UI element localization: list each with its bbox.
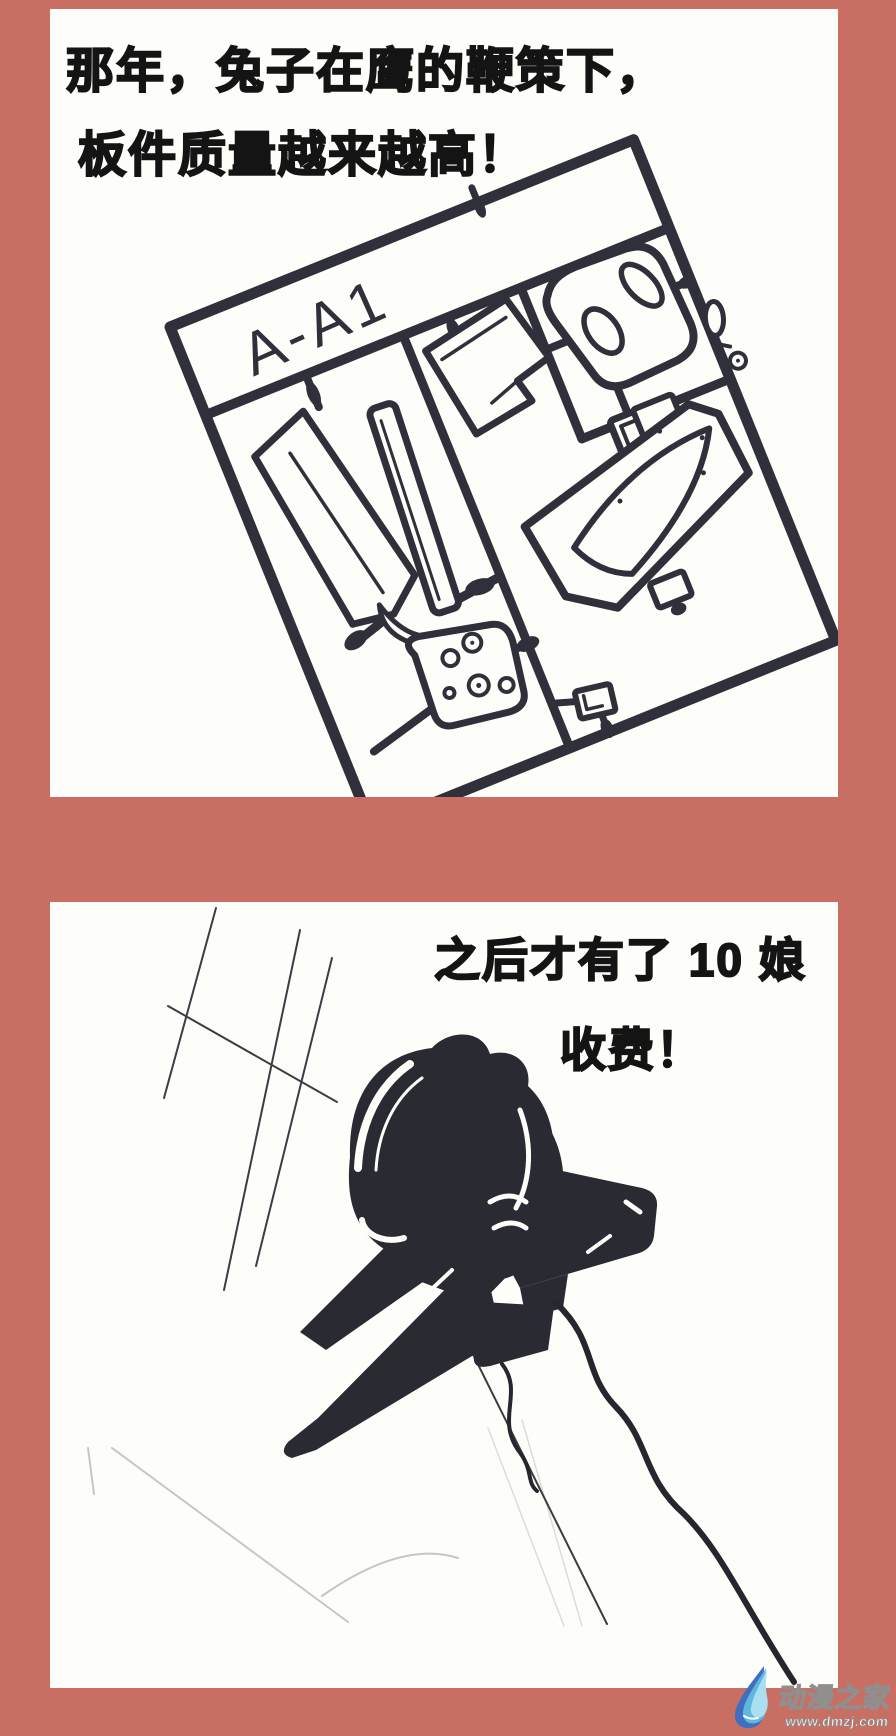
dmzj-watermark: 动漫之家 www.dmzj.com [730, 1664, 890, 1728]
comic-panel-bottom: 之后才有了 10 娘 收费！ [50, 902, 838, 1688]
sprue-part-small-block [574, 684, 615, 719]
comic-page: { "theme": { "background_color": "#c96e6… [0, 0, 896, 1736]
watermark-site-name: 动漫之家 [777, 1685, 892, 1712]
panel1-caption-line1: 那年，兔子在鹰的鞭策下， [66, 31, 666, 101]
watermark-site-url: www.dmzj.com [776, 1715, 889, 1729]
panel2-caption-line2: 收费！ [434, 1014, 830, 1080]
chibi-jet-silhouette [284, 1034, 657, 1458]
trailing-lines [502, 1302, 794, 1682]
comic-panel-top: 那年，兔子在鹰的鞭策下， 板件质量越来越高！ A-A1 [50, 9, 838, 797]
panel1-caption-line2: 板件质量越来越高！ [78, 115, 528, 185]
panel2-caption-line1: 之后才有了 10 娘 [434, 924, 807, 990]
sketch-lines-light [88, 1420, 582, 1626]
dmzj-logo-icon [730, 1664, 774, 1730]
